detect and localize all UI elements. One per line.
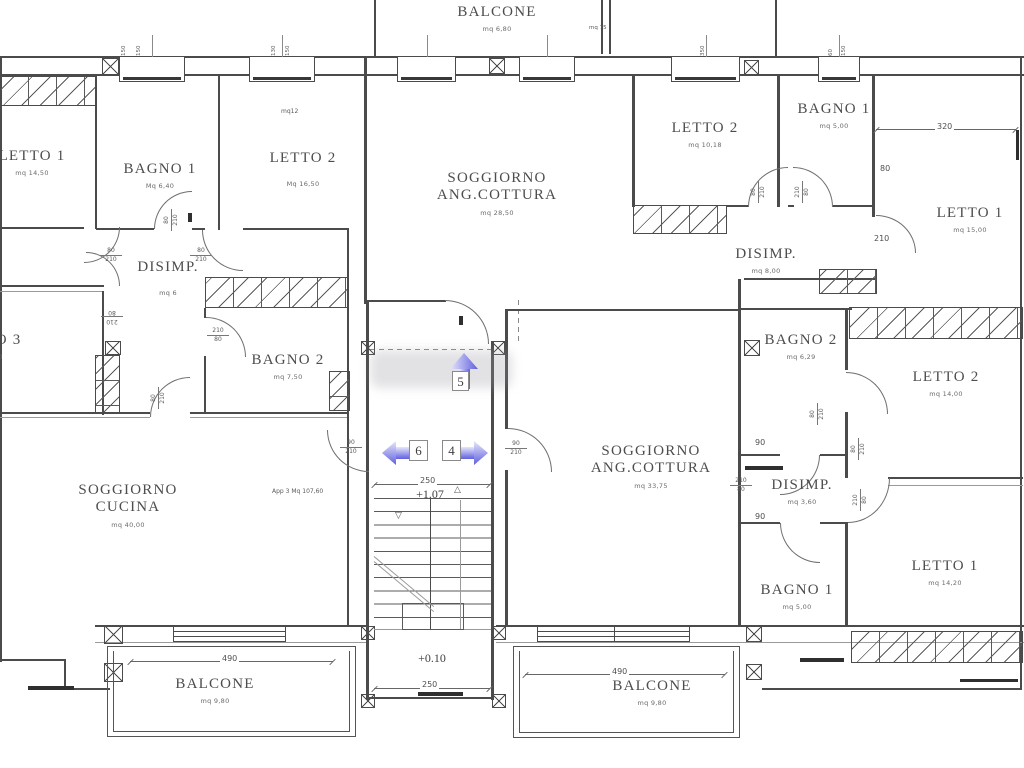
room-area: mq 5,00	[764, 122, 904, 130]
window-tick	[282, 35, 283, 57]
room-area: mq 9,80	[582, 699, 722, 707]
floor-plan: △ ▽ 250 250 490 490 320 80 210 90 90 150…	[0, 0, 1024, 768]
room-area: mq 9,50	[0, 353, 28, 361]
level-marker-entry: +0.10	[408, 651, 456, 666]
room-name: LETTO 2	[635, 120, 775, 137]
arrow-right-shaft	[461, 447, 474, 459]
dim-text: 490	[220, 654, 239, 663]
wall	[845, 412, 848, 478]
wall	[888, 477, 1023, 479]
window-sill	[401, 77, 452, 80]
watermark	[370, 350, 512, 388]
window-tick	[152, 35, 153, 57]
room-area: mq 6	[98, 289, 238, 297]
wall	[1020, 56, 1022, 690]
threshold	[960, 679, 1018, 682]
door-dim: 90210	[340, 439, 362, 455]
room-name: BALCONE	[427, 4, 567, 21]
door-dim-w: 210	[794, 181, 803, 203]
door-dim-h: 80	[101, 309, 123, 317]
pillar	[489, 58, 505, 74]
door-dim-h: 210	[759, 181, 767, 203]
wall	[505, 470, 508, 626]
door-dim-h: 80	[803, 181, 811, 203]
window-dim: 60	[828, 30, 834, 56]
room-label-balcone-top: BALCONEmq 6,80	[427, 4, 567, 33]
pillar	[492, 626, 506, 640]
wall	[190, 412, 349, 414]
room-name: ANG.COTTURA	[427, 187, 567, 204]
window-dim: 150	[136, 30, 142, 56]
hatched-wall	[0, 76, 96, 106]
door-dim: 21080	[207, 327, 229, 343]
wall	[95, 642, 369, 643]
room-label-letto2-right: LETTO 2mq 14,00	[876, 369, 1016, 398]
window	[537, 626, 690, 642]
window-dim: 150	[841, 30, 847, 56]
wall	[727, 205, 748, 207]
room-area: mq 3,60	[732, 498, 872, 506]
threshold	[28, 686, 74, 690]
landing-line	[518, 300, 519, 343]
wall	[740, 522, 780, 524]
room-label-soggiorno-center: SOGGIORNOANG.COTTURAmq 28,50	[427, 170, 567, 217]
window	[397, 56, 456, 82]
door-dim-w: 80	[850, 438, 859, 460]
window	[173, 626, 286, 642]
arrow-left-icon	[382, 441, 396, 465]
dim-text: 90	[753, 438, 767, 447]
door-dim-h: 210	[818, 403, 826, 425]
window-sill	[1016, 130, 1019, 160]
dim-text: 250	[418, 476, 437, 485]
room-label-disimp-left: DISIMP.mq 6	[98, 259, 238, 297]
window-tick	[427, 35, 428, 57]
room-name: LETTO 1	[875, 558, 1015, 575]
door-dim-w: 210	[101, 317, 123, 326]
room-name: BAGNO 2	[731, 332, 871, 349]
room-area: mq 8,00	[696, 267, 836, 275]
door-dim: 80210	[809, 403, 825, 425]
room-area: Mq 16,50	[233, 180, 373, 188]
room-name: BAGNO 1	[90, 161, 230, 178]
window-dim: 150	[121, 30, 127, 56]
hatched-wall	[851, 631, 1023, 663]
wall	[505, 309, 741, 311]
pillar	[102, 58, 119, 75]
room-label-bagno2-left: BAGNO 2mq 7,50	[218, 352, 358, 381]
door-dim-h: 210	[859, 438, 867, 460]
room-name: BAGNO 2	[218, 352, 358, 369]
room-area: mq 33,75	[581, 482, 721, 490]
pillar	[746, 664, 762, 680]
hatched-wall	[95, 355, 120, 413]
door-dim-w: 80	[100, 247, 122, 256]
window	[519, 56, 575, 82]
down-triangle-icon: ▽	[395, 512, 402, 521]
wall	[738, 279, 741, 625]
door-dim-h: 210	[505, 449, 527, 457]
window	[249, 56, 315, 82]
door-dim-h: 210	[159, 387, 167, 409]
room-name: LETTO 2	[876, 369, 1016, 386]
window-sill	[675, 77, 736, 80]
wall	[366, 300, 446, 302]
hatched-wall	[849, 307, 1023, 339]
room-name: DISIMP.	[98, 259, 238, 276]
door-dim: 80210	[750, 181, 766, 203]
pillar	[361, 694, 375, 708]
room-area: mq 7,50	[218, 373, 358, 381]
room-label-soggiorno-cucina: SOGGIORNOCUCINAmq 40,00	[58, 482, 198, 529]
room-area: mq 6,80	[427, 25, 567, 33]
door-dim-w: 90	[505, 440, 527, 449]
door-dim-w: 80	[750, 181, 759, 203]
apartment-number-6: 6	[409, 440, 428, 461]
door-dim-h: 210	[172, 209, 180, 231]
dim-text: 80	[878, 164, 892, 173]
wall	[204, 356, 206, 414]
door-dim: 80210	[150, 387, 166, 409]
door-arc	[780, 523, 820, 563]
room-area: mq 15,00	[900, 226, 1024, 234]
room-name: SOGGIORNO	[58, 482, 198, 499]
door-handle	[459, 316, 463, 325]
room-note: mq12	[281, 108, 298, 115]
room-label-bagno1-left: BAGNO 1Mq 6,40	[90, 161, 230, 190]
room-area: mq 10,18	[635, 141, 775, 149]
pillar	[492, 694, 506, 708]
room-label-letto1-topright: LETTO 1mq 15,00	[900, 205, 1024, 234]
room-name: BALCONE	[145, 676, 285, 693]
hatched-wall	[633, 205, 727, 234]
balcony-rail	[775, 0, 777, 57]
room-area: mq 6,29	[731, 353, 871, 361]
stair-wall	[366, 300, 369, 700]
wall	[0, 291, 104, 292]
dim-text: 90	[753, 512, 767, 521]
note-text: mq 75	[589, 25, 607, 31]
window	[818, 56, 860, 82]
wall	[740, 454, 780, 456]
balcony-rail	[609, 0, 611, 54]
room-name: DISIMP.	[732, 477, 872, 494]
room-name: LETTO 2	[233, 150, 373, 167]
wall	[243, 228, 349, 230]
wall	[0, 412, 150, 414]
wall	[0, 417, 150, 418]
room-name: CUCINA	[58, 499, 198, 516]
door-dim-w: 80	[150, 387, 159, 409]
room-name: LETTO 3	[0, 332, 28, 349]
room-area: mq 9,80	[145, 697, 285, 705]
window-sill	[523, 77, 571, 80]
room-label-letto2-left: LETTO 2Mq 16,50	[233, 150, 373, 188]
room-area: mq 14,20	[875, 579, 1015, 587]
window-sill	[123, 77, 181, 80]
room-area: mq 5,00	[727, 603, 867, 611]
pillar	[361, 626, 375, 640]
room-label-letto2-topright: LETTO 2mq 10,18	[635, 120, 775, 149]
stair-direction-line	[460, 500, 461, 629]
wall	[762, 688, 1022, 690]
door-handle	[188, 213, 192, 222]
door-dim: 80210	[850, 438, 866, 460]
room-area: mq 28,50	[427, 209, 567, 217]
dim-text: 320	[935, 122, 954, 131]
room-name: LETTO 1	[900, 205, 1024, 222]
window-sill	[822, 77, 856, 80]
window-tick	[839, 35, 840, 57]
door-dim-w: 80	[809, 403, 818, 425]
dim-text: 490	[610, 667, 629, 676]
wall	[888, 485, 1023, 486]
threshold	[800, 658, 844, 662]
window-sill	[253, 77, 311, 80]
wall	[190, 417, 349, 418]
room-area: Mq 6,40	[90, 182, 230, 190]
pillar	[744, 60, 759, 75]
room-name: DISIMP.	[696, 246, 836, 263]
window-tick	[547, 35, 548, 57]
room-label-disimp-topright: DISIMP.mq 8,00	[696, 246, 836, 275]
apartment-note: App 3 Mq 107,60	[272, 488, 323, 495]
pillar	[746, 626, 762, 642]
door-dim-w: 210	[207, 327, 229, 336]
room-label-bagno2-right: BAGNO 2mq 6,29	[731, 332, 871, 361]
wall	[740, 308, 852, 310]
room-area: mq 40,00	[58, 521, 198, 529]
door-dim-h: 210	[340, 448, 362, 456]
wall	[820, 522, 847, 524]
wall	[0, 659, 66, 661]
stair-wall	[491, 342, 494, 700]
dim-text: 210	[872, 234, 891, 243]
room-label-balcone-bottom-right: BALCONEmq 9,80	[582, 678, 722, 707]
wall	[218, 76, 220, 230]
door-dim: 21080	[101, 309, 123, 325]
window-dim: 350	[700, 32, 706, 56]
room-name: SOGGIORNO	[427, 170, 567, 187]
room-label-disimp-right: DISIMP.mq 3,60	[732, 477, 872, 506]
wall	[0, 227, 84, 229]
apartment-number-4: 4	[442, 440, 461, 461]
room-area: mq 14,00	[876, 390, 1016, 398]
door-dim: 21080	[794, 181, 810, 203]
room-label-letto1-left: LETTO 1mq 14,50	[0, 148, 92, 177]
room-label-letto1-right: LETTO 1mq 14,20	[875, 558, 1015, 587]
door-arc	[445, 300, 489, 344]
room-label-soggiorno-right: SOGGIORNOANG.COTTURAmq 33,75	[581, 443, 721, 490]
threshold	[745, 466, 783, 470]
door-dim-w: 80	[163, 209, 172, 231]
apartment-number-5: 5	[452, 371, 469, 391]
door-dim-w: 90	[340, 439, 362, 448]
door-dim-w: 80	[190, 247, 212, 256]
balcony-rail	[374, 0, 376, 57]
wall	[366, 697, 494, 699]
door-dim: 90210	[505, 440, 527, 456]
arrow-right-icon	[474, 441, 488, 465]
room-name: BALCONE	[582, 678, 722, 695]
level-marker-upper: +1.07	[406, 487, 454, 502]
dim-text: 250	[420, 680, 439, 689]
wall	[872, 76, 875, 217]
room-name: SOGGIORNO	[581, 443, 721, 460]
room-label-bagno1-topright: BAGNO 1mq 5,00	[764, 101, 904, 130]
wall	[833, 205, 875, 207]
window-dim: 150	[285, 30, 291, 56]
room-name: BAGNO 1	[764, 101, 904, 118]
window	[119, 56, 185, 82]
up-triangle-icon: △	[454, 486, 461, 495]
door-dim: 80210	[163, 209, 179, 231]
room-name: ANG.COTTURA	[581, 460, 721, 477]
pillar	[104, 625, 123, 644]
door-dim-h: 80	[207, 336, 229, 344]
window-mullion	[614, 627, 615, 641]
window	[671, 56, 740, 82]
window-dim: 130	[271, 30, 277, 56]
room-name: LETTO 1	[0, 148, 92, 165]
room-label-bagno1-right: BAGNO 1mq 5,00	[727, 582, 867, 611]
room-label-balcone-bottom-left: BALCONEmq 9,80	[145, 676, 285, 705]
room-area: mq 14,50	[0, 169, 92, 177]
room-label-letto3-left: LETTO 3mq 9,50	[0, 332, 28, 361]
wall	[820, 454, 847, 456]
threshold	[418, 692, 463, 696]
room-name: BAGNO 1	[727, 582, 867, 599]
pillar	[105, 341, 121, 355]
